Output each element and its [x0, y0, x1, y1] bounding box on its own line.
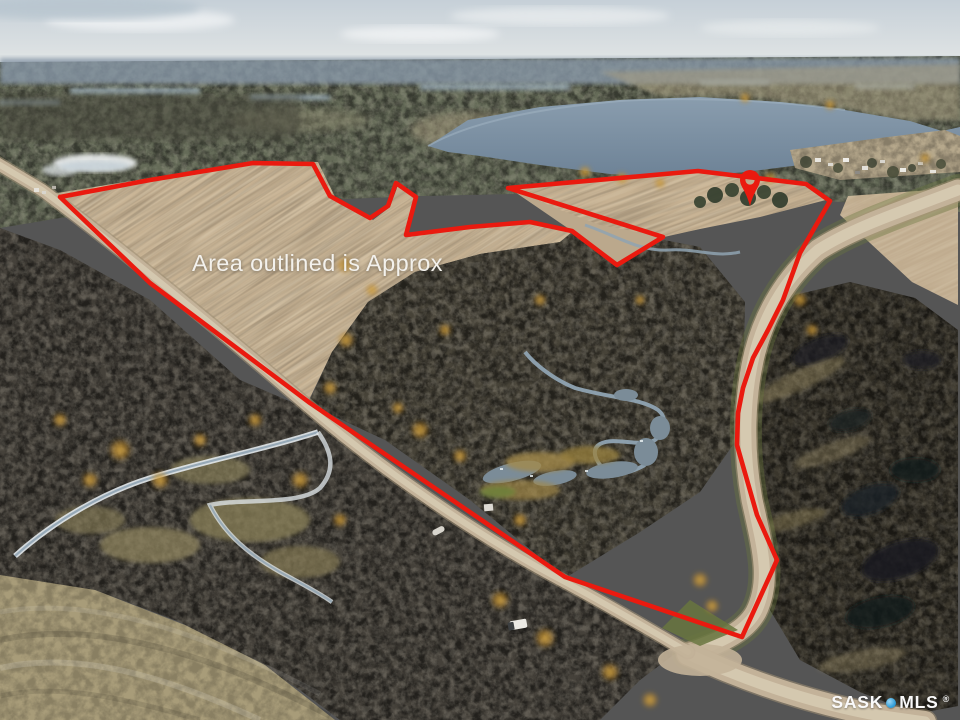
sask-mls-watermark: SASK MLS ®	[831, 692, 950, 713]
watermark-sask: SASK	[831, 692, 883, 713]
mls-dot-icon	[886, 698, 896, 708]
distant-forest	[0, 95, 300, 140]
watermark-registered-mark: ®	[943, 694, 950, 704]
east-marsh	[742, 282, 958, 714]
approx-caption: Area outlined is Approx	[192, 250, 443, 277]
watermark-mls: MLS	[899, 692, 938, 713]
aerial-property-photo: Area outlined is Approx SASK MLS ®	[0, 0, 960, 720]
landscape-scene	[0, 0, 960, 720]
shed	[484, 504, 494, 512]
